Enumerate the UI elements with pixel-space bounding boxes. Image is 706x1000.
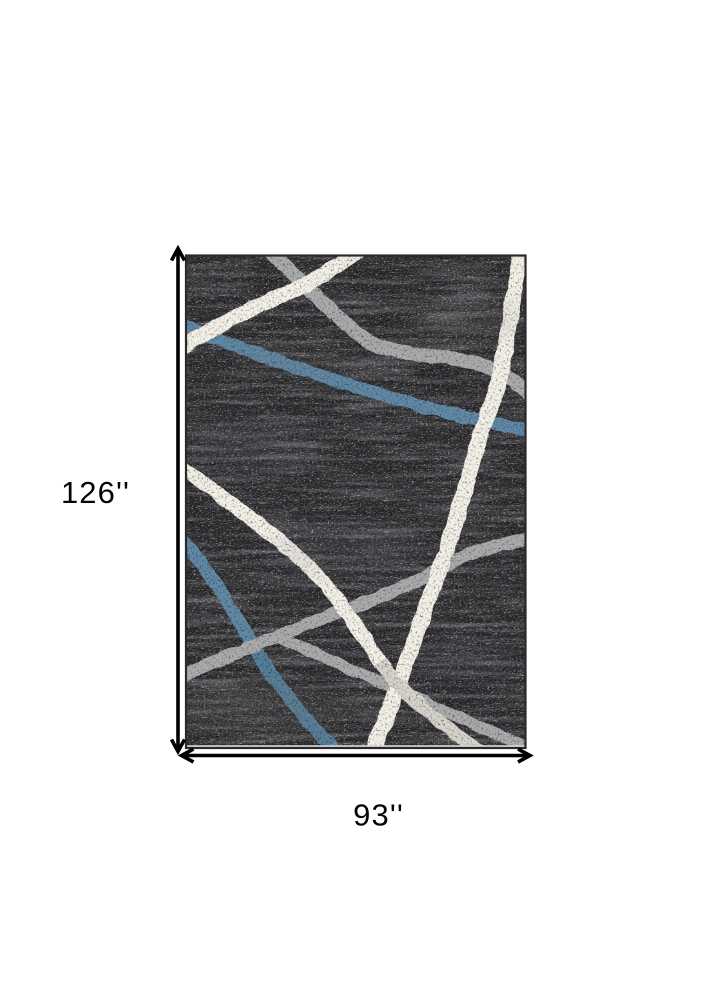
svg-text:93'': 93'': [353, 798, 404, 833]
svg-text:126'': 126'': [61, 475, 130, 510]
